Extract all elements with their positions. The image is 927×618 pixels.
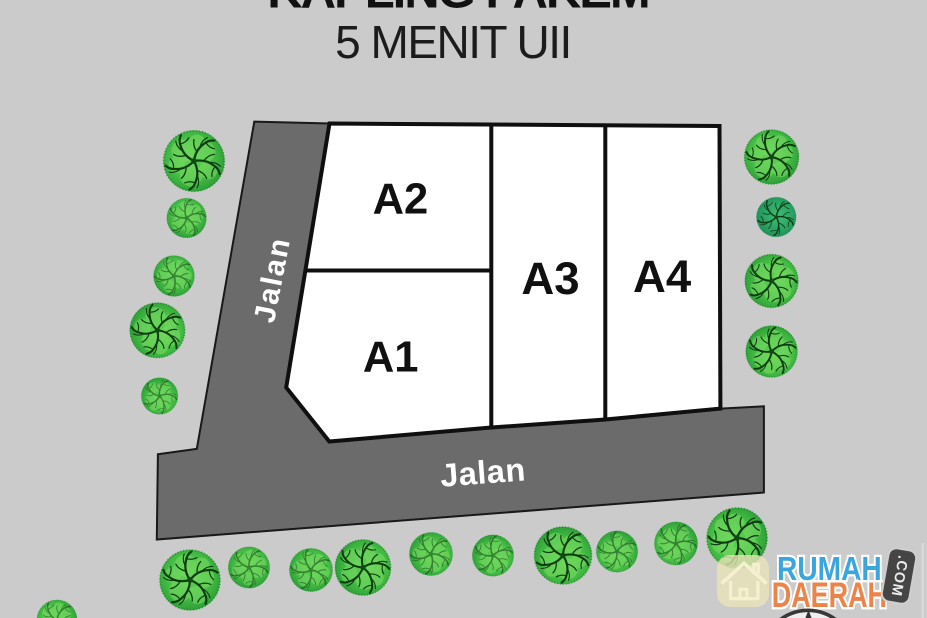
svg-text:A1: A1: [363, 334, 419, 382]
svg-text:A3: A3: [521, 253, 579, 304]
svg-text:A2: A2: [373, 176, 429, 224]
svg-text:5 MENIT UII: 5 MENIT UII: [335, 16, 571, 68]
svg-text:DAERAH: DAERAH: [772, 576, 887, 615]
svg-text:Jalan: Jalan: [439, 451, 527, 493]
svg-text:A4: A4: [633, 251, 692, 302]
